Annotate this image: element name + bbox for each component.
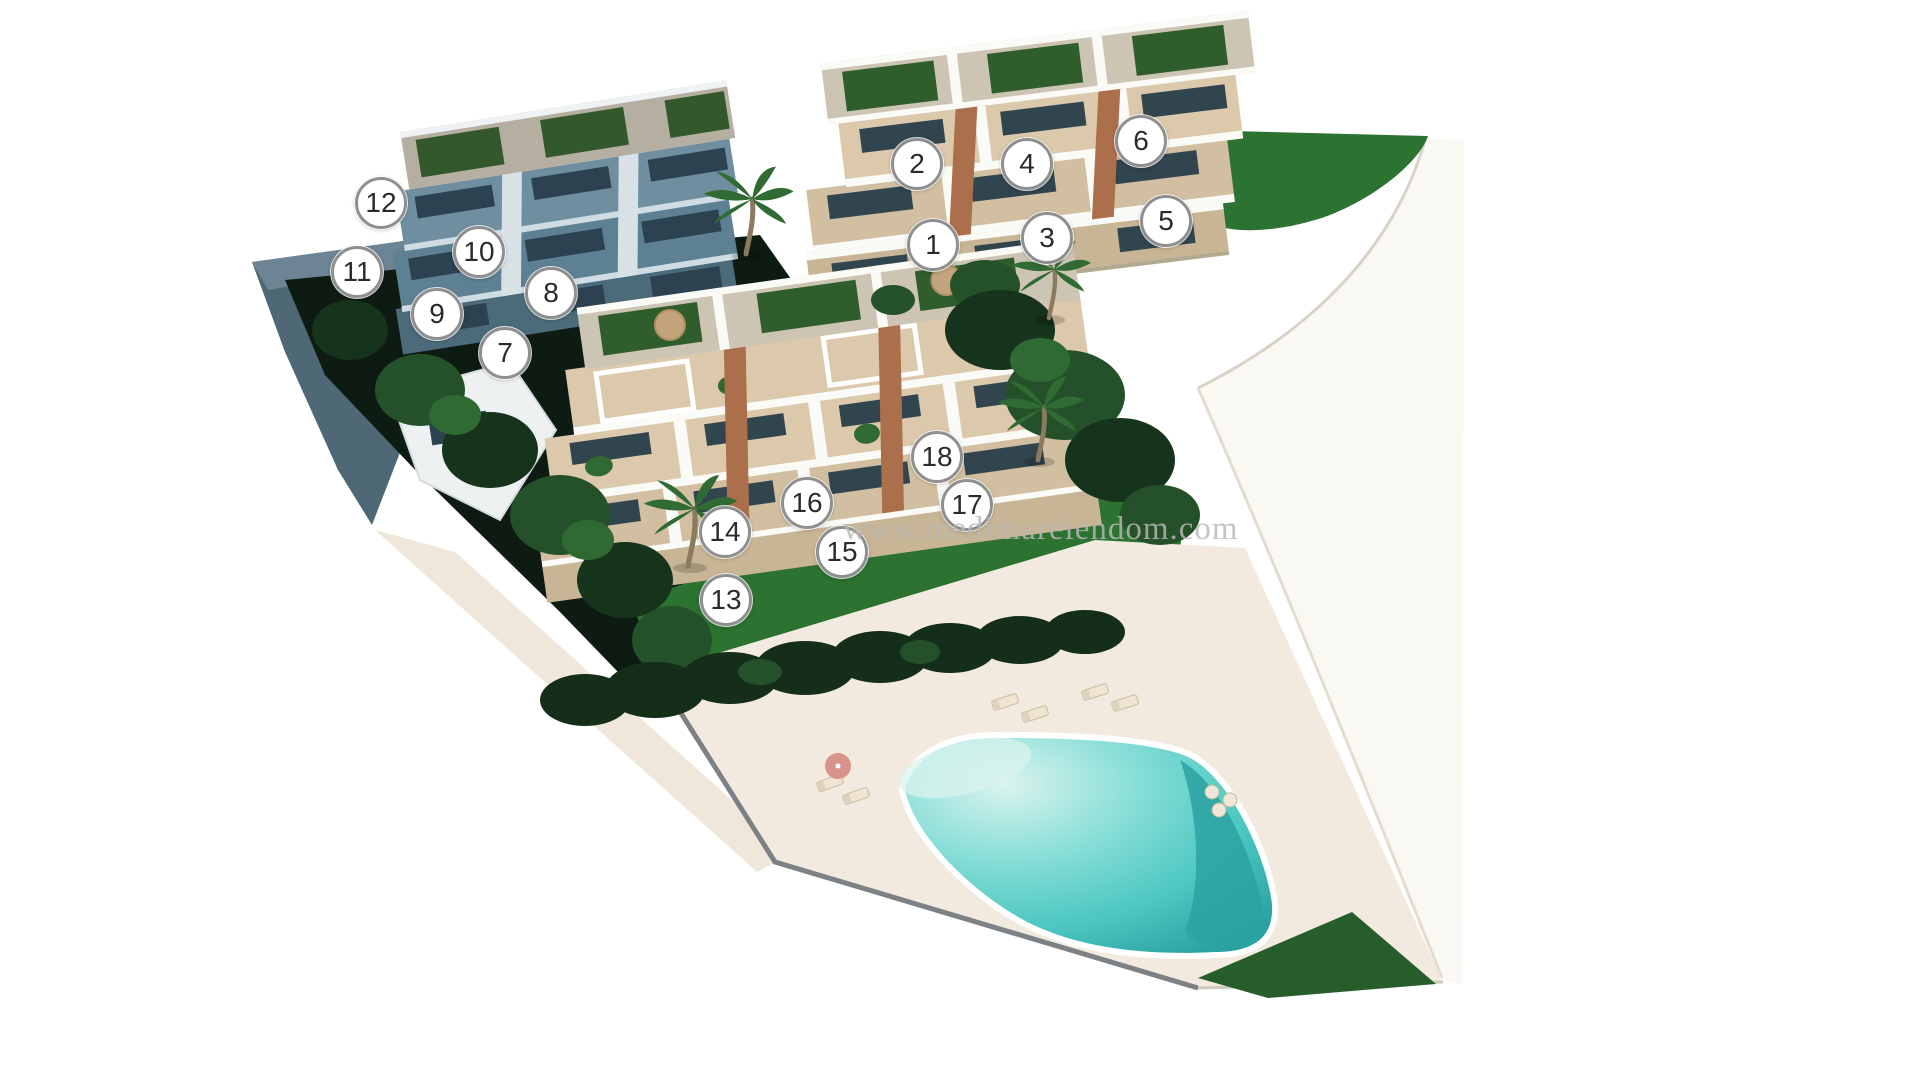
- parasol: [825, 753, 851, 779]
- site-render: [0, 0, 1920, 1080]
- unit-marker-17[interactable]: 17: [941, 479, 993, 531]
- unit-marker-3[interactable]: 3: [1021, 212, 1073, 264]
- unit-marker-18[interactable]: 18: [911, 431, 963, 483]
- site-plan-stage: 123456789101112131415161718 www.medimare…: [0, 0, 1920, 1080]
- unit-marker-2[interactable]: 2: [891, 138, 943, 190]
- unit-marker-8[interactable]: 8: [525, 267, 577, 319]
- unit-marker-14[interactable]: 14: [699, 506, 751, 558]
- unit-marker-16[interactable]: 16: [781, 477, 833, 529]
- unit-marker-7[interactable]: 7: [479, 327, 531, 379]
- unit-marker-6[interactable]: 6: [1115, 115, 1167, 167]
- unit-marker-10[interactable]: 10: [453, 226, 505, 278]
- unit-marker-11[interactable]: 11: [331, 246, 383, 298]
- unit-marker-5[interactable]: 5: [1140, 195, 1192, 247]
- unit-marker-15[interactable]: 15: [816, 526, 868, 578]
- unit-marker-4[interactable]: 4: [1001, 138, 1053, 190]
- unit-marker-13[interactable]: 13: [700, 574, 752, 626]
- unit-marker-1[interactable]: 1: [907, 219, 959, 271]
- unit-marker-9[interactable]: 9: [411, 288, 463, 340]
- unit-marker-12[interactable]: 12: [355, 177, 407, 229]
